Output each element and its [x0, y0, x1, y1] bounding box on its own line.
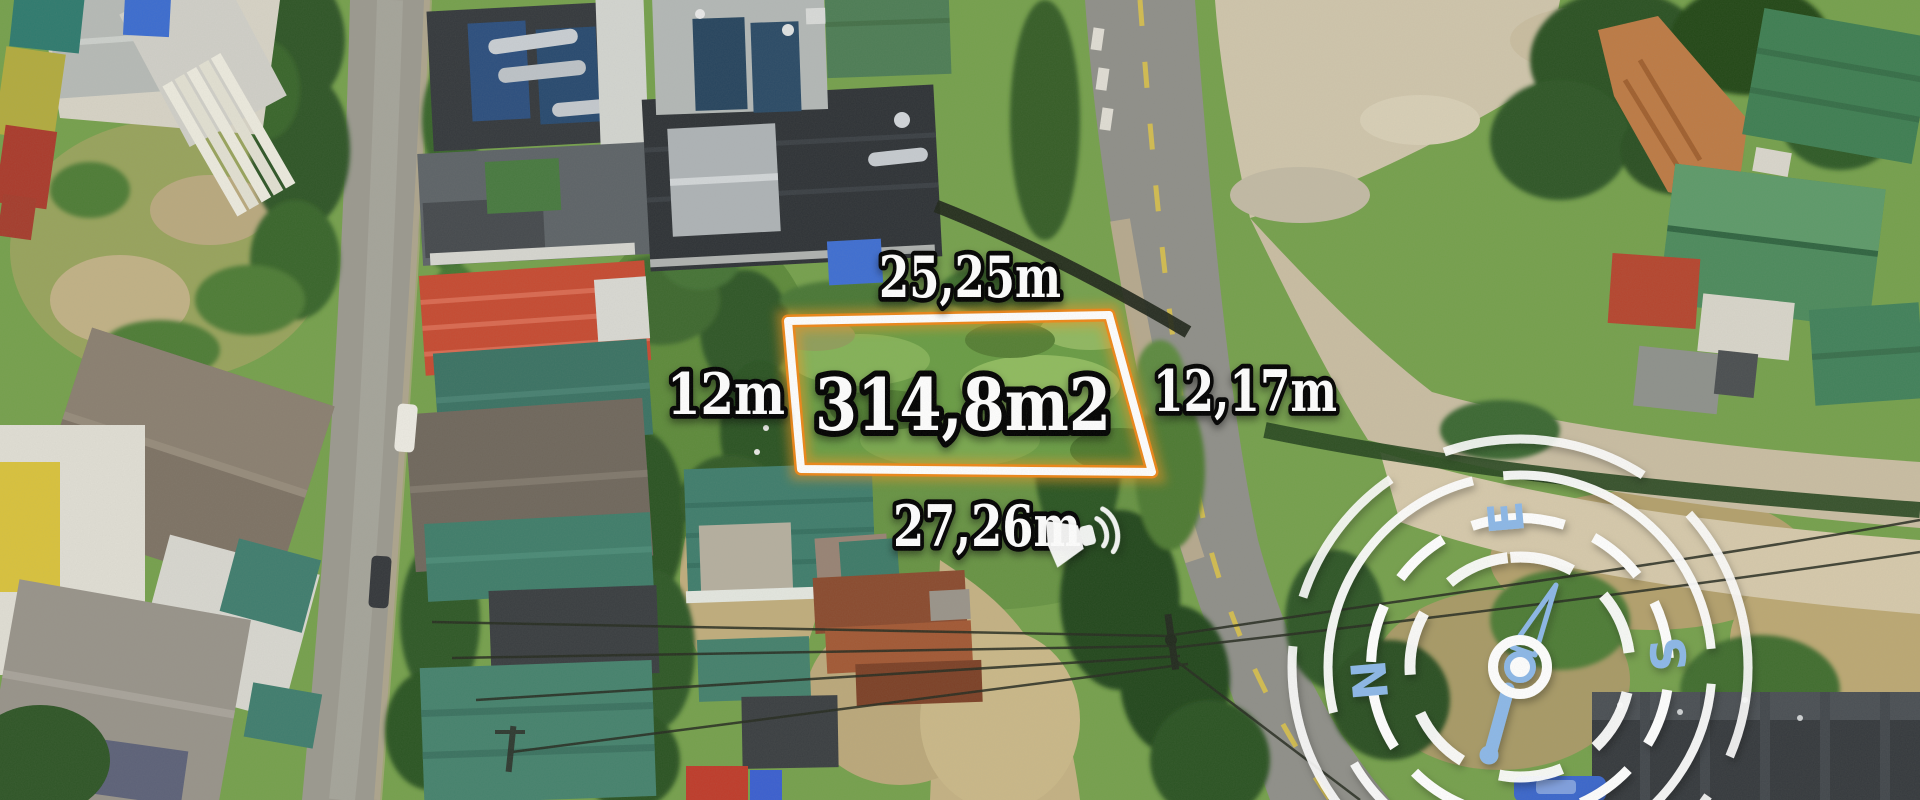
- aerial-photo-canvas: 25,25m 12m 314,8m2 12,17m 27,26m N E S: [0, 0, 1920, 800]
- photo-grain: [0, 0, 1920, 800]
- aerial-photo: 25,25m 12m 314,8m2 12,17m 27,26m N E S: [0, 0, 1920, 800]
